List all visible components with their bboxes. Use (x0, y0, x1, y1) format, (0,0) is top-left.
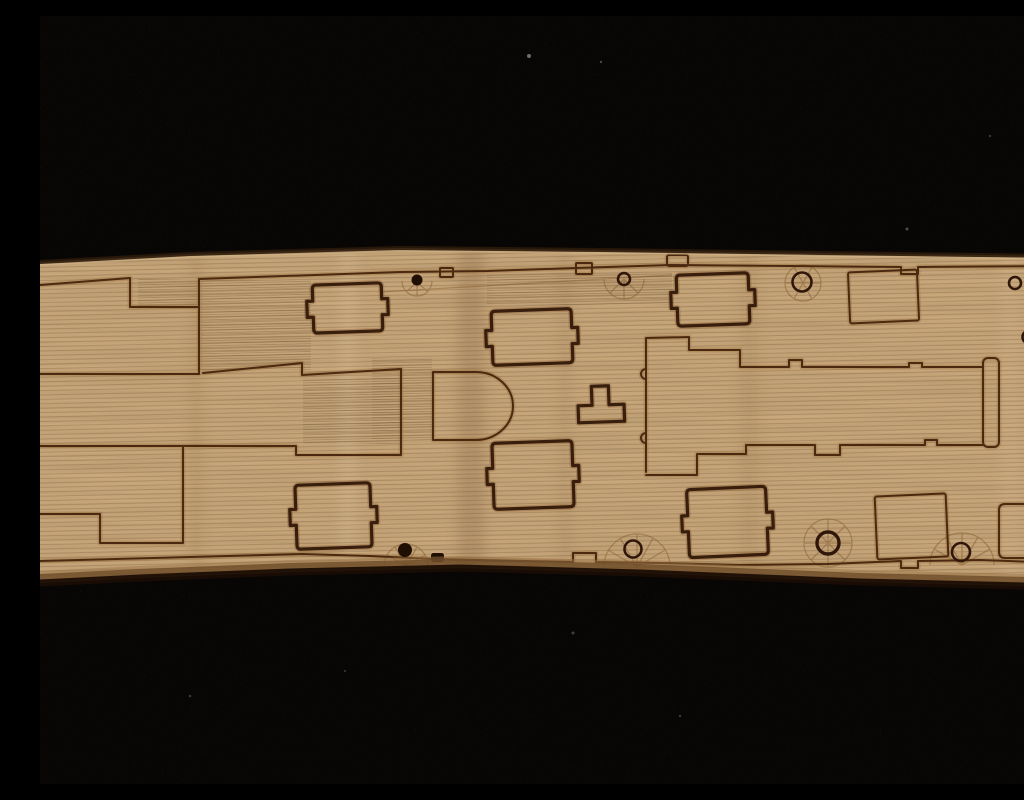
wood-strip (40, 241, 1024, 601)
photo-wooden-deck-sheet: Close-up photo of a laser-etched wooden … (40, 16, 1024, 784)
photo-canvas: Close-up photo of a laser-etched wooden … (40, 16, 1024, 784)
